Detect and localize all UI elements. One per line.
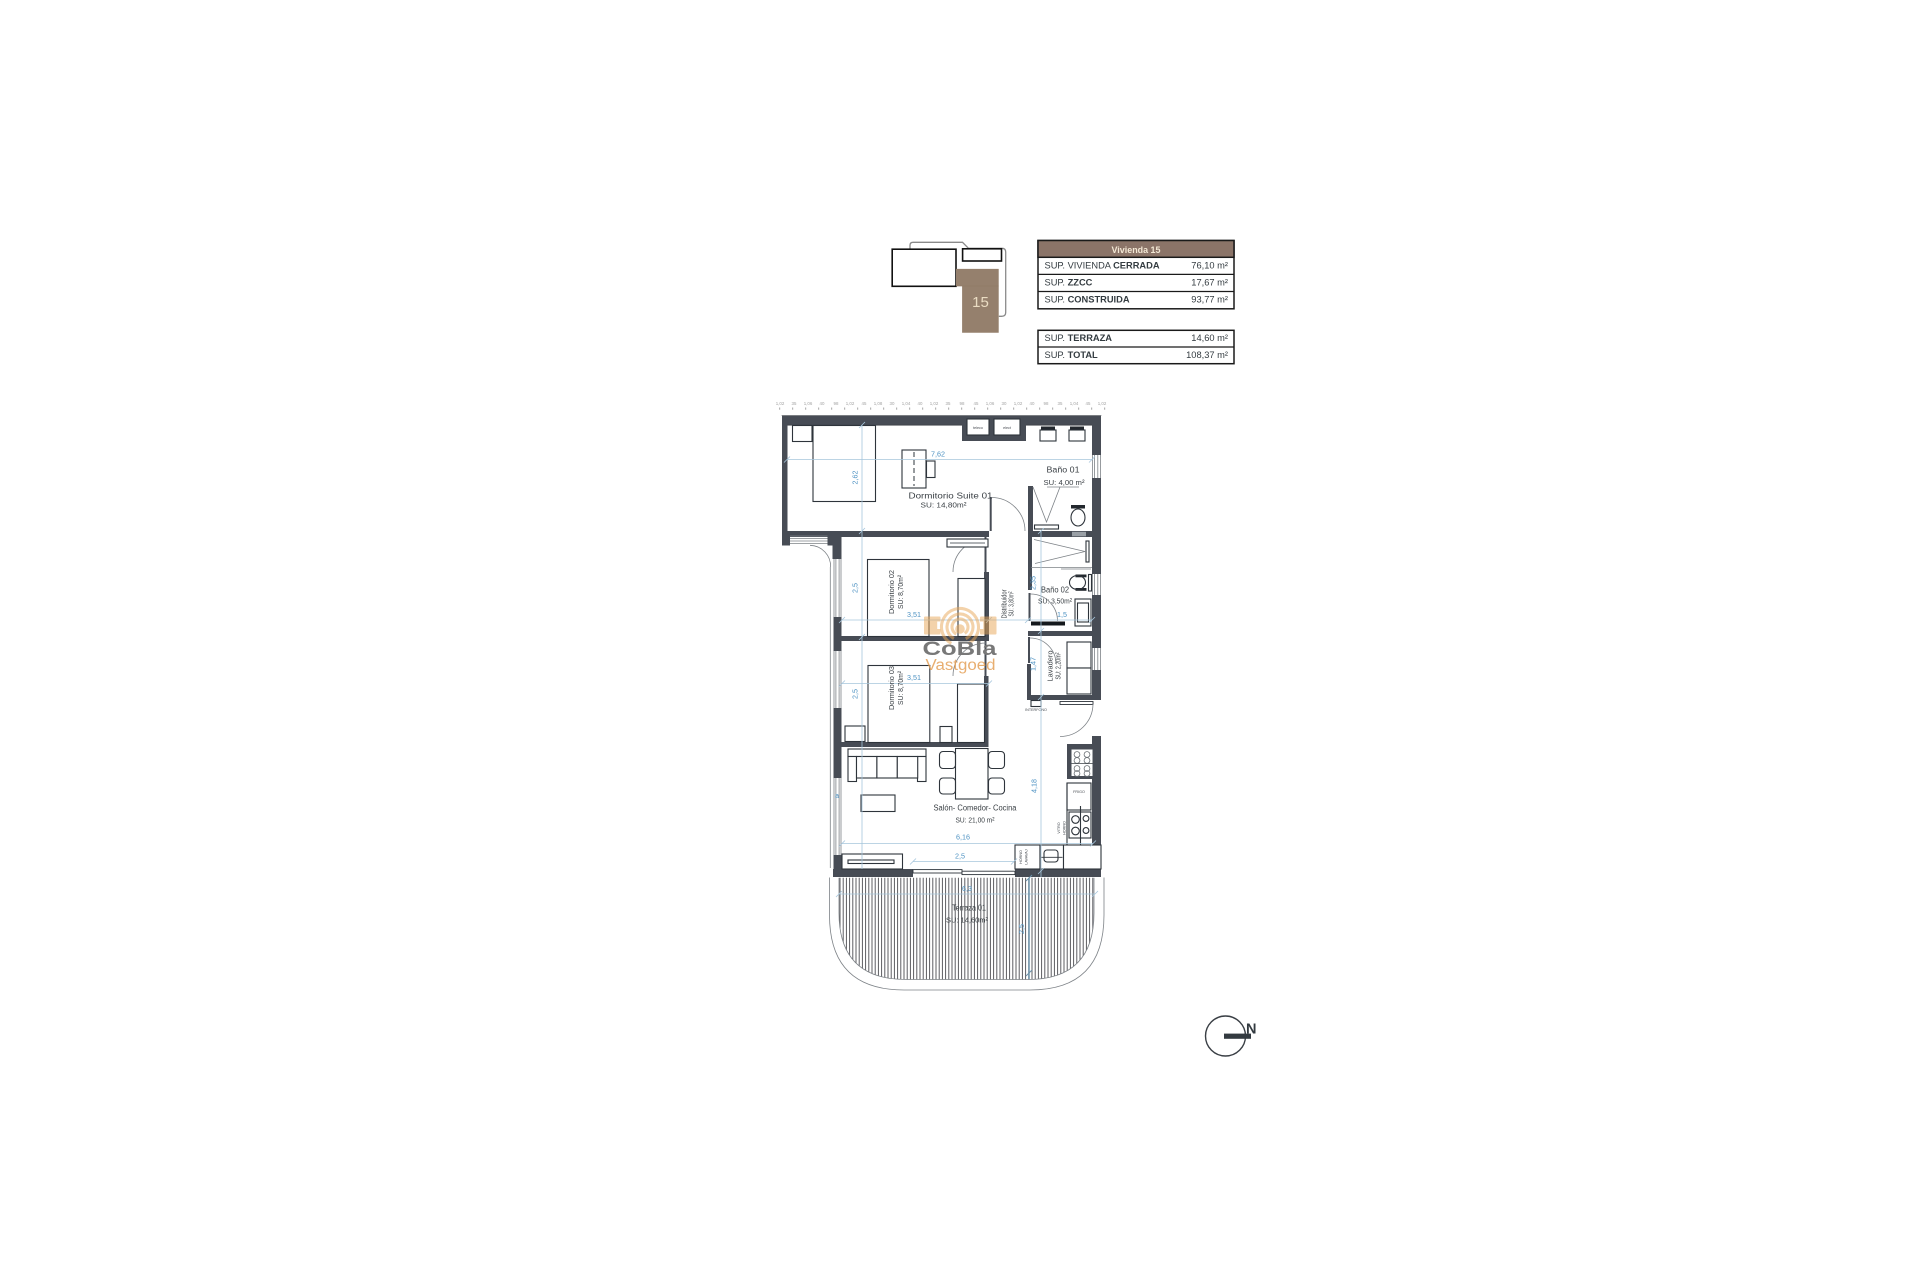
svg-text:35: 35 bbox=[792, 401, 797, 406]
svg-text:6,16: 6,16 bbox=[956, 833, 970, 842]
svg-text:98: 98 bbox=[960, 401, 965, 406]
svg-text:6,3: 6,3 bbox=[962, 884, 972, 893]
svg-text:SU: 8,70m²: SU: 8,70m² bbox=[896, 575, 905, 609]
svg-text:INTERFONO: INTERFONO bbox=[1025, 708, 1047, 712]
svg-text:2,5: 2,5 bbox=[1017, 924, 1026, 934]
svg-text:108,37 m²: 108,37 m² bbox=[1186, 350, 1228, 360]
svg-text:Dormitorio 03: Dormitorio 03 bbox=[887, 666, 896, 710]
svg-text:N: N bbox=[1246, 1022, 1256, 1038]
svg-text:2,5: 2,5 bbox=[955, 852, 965, 861]
svg-text:35: 35 bbox=[946, 401, 951, 406]
svg-text:1,5: 1,5 bbox=[1057, 610, 1067, 619]
svg-text:SU: 4,00 m²: SU: 4,00 m² bbox=[1044, 478, 1085, 487]
svg-text:Dormitorio 02: Dormitorio 02 bbox=[887, 570, 896, 614]
svg-text:98: 98 bbox=[834, 401, 839, 406]
svg-text:Terraza 01: Terraza 01 bbox=[952, 904, 986, 913]
svg-text:Baño 01: Baño 01 bbox=[1047, 466, 1081, 475]
svg-text:1,47: 1,47 bbox=[1029, 657, 1038, 671]
svg-text:Dormitorio Suite 01: Dormitorio Suite 01 bbox=[909, 492, 994, 501]
svg-text:45: 45 bbox=[1086, 401, 1091, 406]
svg-text:30: 30 bbox=[1002, 401, 1007, 406]
svg-text:Baño 02: Baño 02 bbox=[1041, 586, 1070, 595]
svg-text:2,35: 2,35 bbox=[1029, 576, 1038, 590]
svg-text:1,04: 1,04 bbox=[902, 401, 911, 406]
svg-text:35: 35 bbox=[1058, 401, 1063, 406]
svg-text:1,08: 1,08 bbox=[874, 401, 883, 406]
svg-text:1,02: 1,02 bbox=[776, 401, 785, 406]
svg-text:HORNO: HORNO bbox=[1063, 821, 1067, 835]
svg-text:15: 15 bbox=[972, 294, 989, 311]
svg-text:VITRO: VITRO bbox=[1057, 822, 1061, 833]
svg-text:4,18: 4,18 bbox=[1030, 779, 1039, 793]
svg-text:40: 40 bbox=[820, 401, 825, 406]
svg-text:LAVAVAJ: LAVAVAJ bbox=[1025, 849, 1029, 864]
svg-text:45: 45 bbox=[862, 401, 867, 406]
svg-text:a: a bbox=[835, 791, 839, 800]
svg-text:Vivienda 15: Vivienda 15 bbox=[1112, 245, 1162, 256]
svg-text:3,51: 3,51 bbox=[907, 673, 921, 682]
svg-text:2,62: 2,62 bbox=[851, 471, 860, 485]
svg-text:Vastgoed: Vastgoed bbox=[926, 657, 996, 674]
svg-text:1,02: 1,02 bbox=[930, 401, 939, 406]
svg-text:14,60 m²: 14,60 m² bbox=[1191, 333, 1228, 343]
svg-text:2,5: 2,5 bbox=[851, 689, 860, 699]
svg-text:7,62: 7,62 bbox=[931, 450, 945, 459]
svg-text:40: 40 bbox=[918, 401, 923, 406]
svg-text:1,04: 1,04 bbox=[1070, 401, 1079, 406]
svg-text:SU: 14,80m²: SU: 14,80m² bbox=[921, 501, 967, 510]
svg-text:1,02: 1,02 bbox=[846, 401, 855, 406]
svg-text:30: 30 bbox=[890, 401, 895, 406]
svg-text:Salón- Comedor- Cocina: Salón- Comedor- Cocina bbox=[934, 804, 1018, 813]
svg-text:FRIGO: FRIGO bbox=[1073, 790, 1085, 794]
svg-text:SU: 3,50m²: SU: 3,50m² bbox=[1038, 597, 1072, 606]
svg-text:98: 98 bbox=[1044, 401, 1049, 406]
svg-text:1,06: 1,06 bbox=[986, 401, 995, 406]
svg-text:SU: 14,60m²: SU: 14,60m² bbox=[946, 916, 988, 925]
svg-text:1,02: 1,02 bbox=[1098, 401, 1107, 406]
svg-text:1,02: 1,02 bbox=[1014, 401, 1023, 406]
svg-text:SUP. VIVIENDA CERRADA: SUP. VIVIENDA CERRADA bbox=[1045, 260, 1160, 270]
svg-text:teleco: teleco bbox=[973, 426, 983, 430]
svg-text:SUP. CONSTRUIDA: SUP. CONSTRUIDA bbox=[1045, 295, 1130, 305]
svg-text:45: 45 bbox=[974, 401, 979, 406]
svg-text:elect: elect bbox=[1003, 426, 1011, 430]
svg-text:HORNO: HORNO bbox=[1019, 850, 1023, 864]
svg-text:SUP. TERRAZA: SUP. TERRAZA bbox=[1045, 333, 1113, 343]
svg-text:SU: 21,00 m²: SU: 21,00 m² bbox=[956, 816, 995, 825]
svg-text:1,06: 1,06 bbox=[804, 401, 813, 406]
svg-text:40: 40 bbox=[1030, 401, 1035, 406]
svg-text:93,77 m²: 93,77 m² bbox=[1191, 295, 1228, 305]
svg-text:17,67 m²: 17,67 m² bbox=[1191, 277, 1228, 287]
svg-text:SU: 3,80m²: SU: 3,80m² bbox=[1007, 591, 1016, 616]
svg-text:2,5: 2,5 bbox=[851, 583, 860, 593]
svg-text:SU: 2,20m²: SU: 2,20m² bbox=[1054, 652, 1063, 679]
svg-text:SUP. ZZCC: SUP. ZZCC bbox=[1045, 277, 1093, 287]
svg-text:76,10 m²: 76,10 m² bbox=[1191, 260, 1228, 270]
svg-text:3,51: 3,51 bbox=[907, 610, 921, 619]
svg-text:SUP. TOTAL: SUP. TOTAL bbox=[1045, 350, 1099, 360]
svg-text:SU: 8,70m²: SU: 8,70m² bbox=[896, 671, 905, 705]
